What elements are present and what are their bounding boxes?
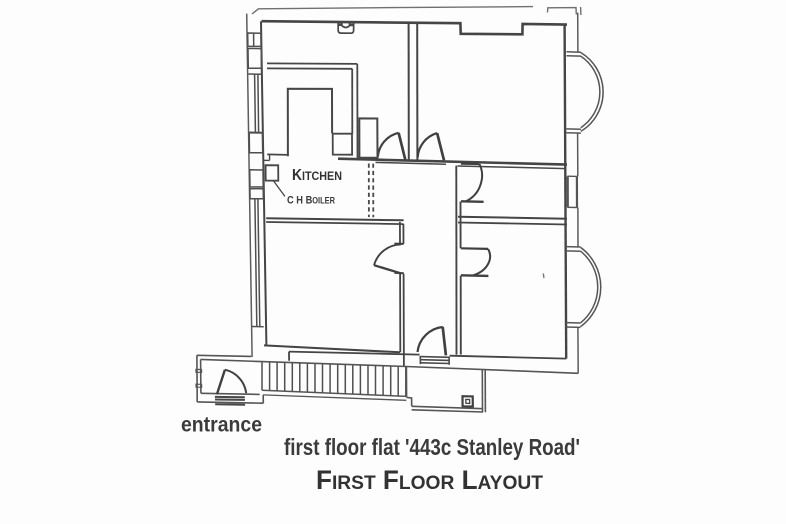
svg-text:KITCHEN: KITCHEN (292, 167, 342, 184)
svg-text:first floor flat '443c Stanley: first floor flat '443c Stanley Road' (284, 434, 580, 460)
svg-text:C H BOILER: C H BOILER (287, 195, 336, 207)
svg-text:entrance: entrance (181, 412, 262, 436)
svg-text:FIRST FLOOR LAYOUT: FIRST FLOOR LAYOUT (316, 465, 543, 495)
